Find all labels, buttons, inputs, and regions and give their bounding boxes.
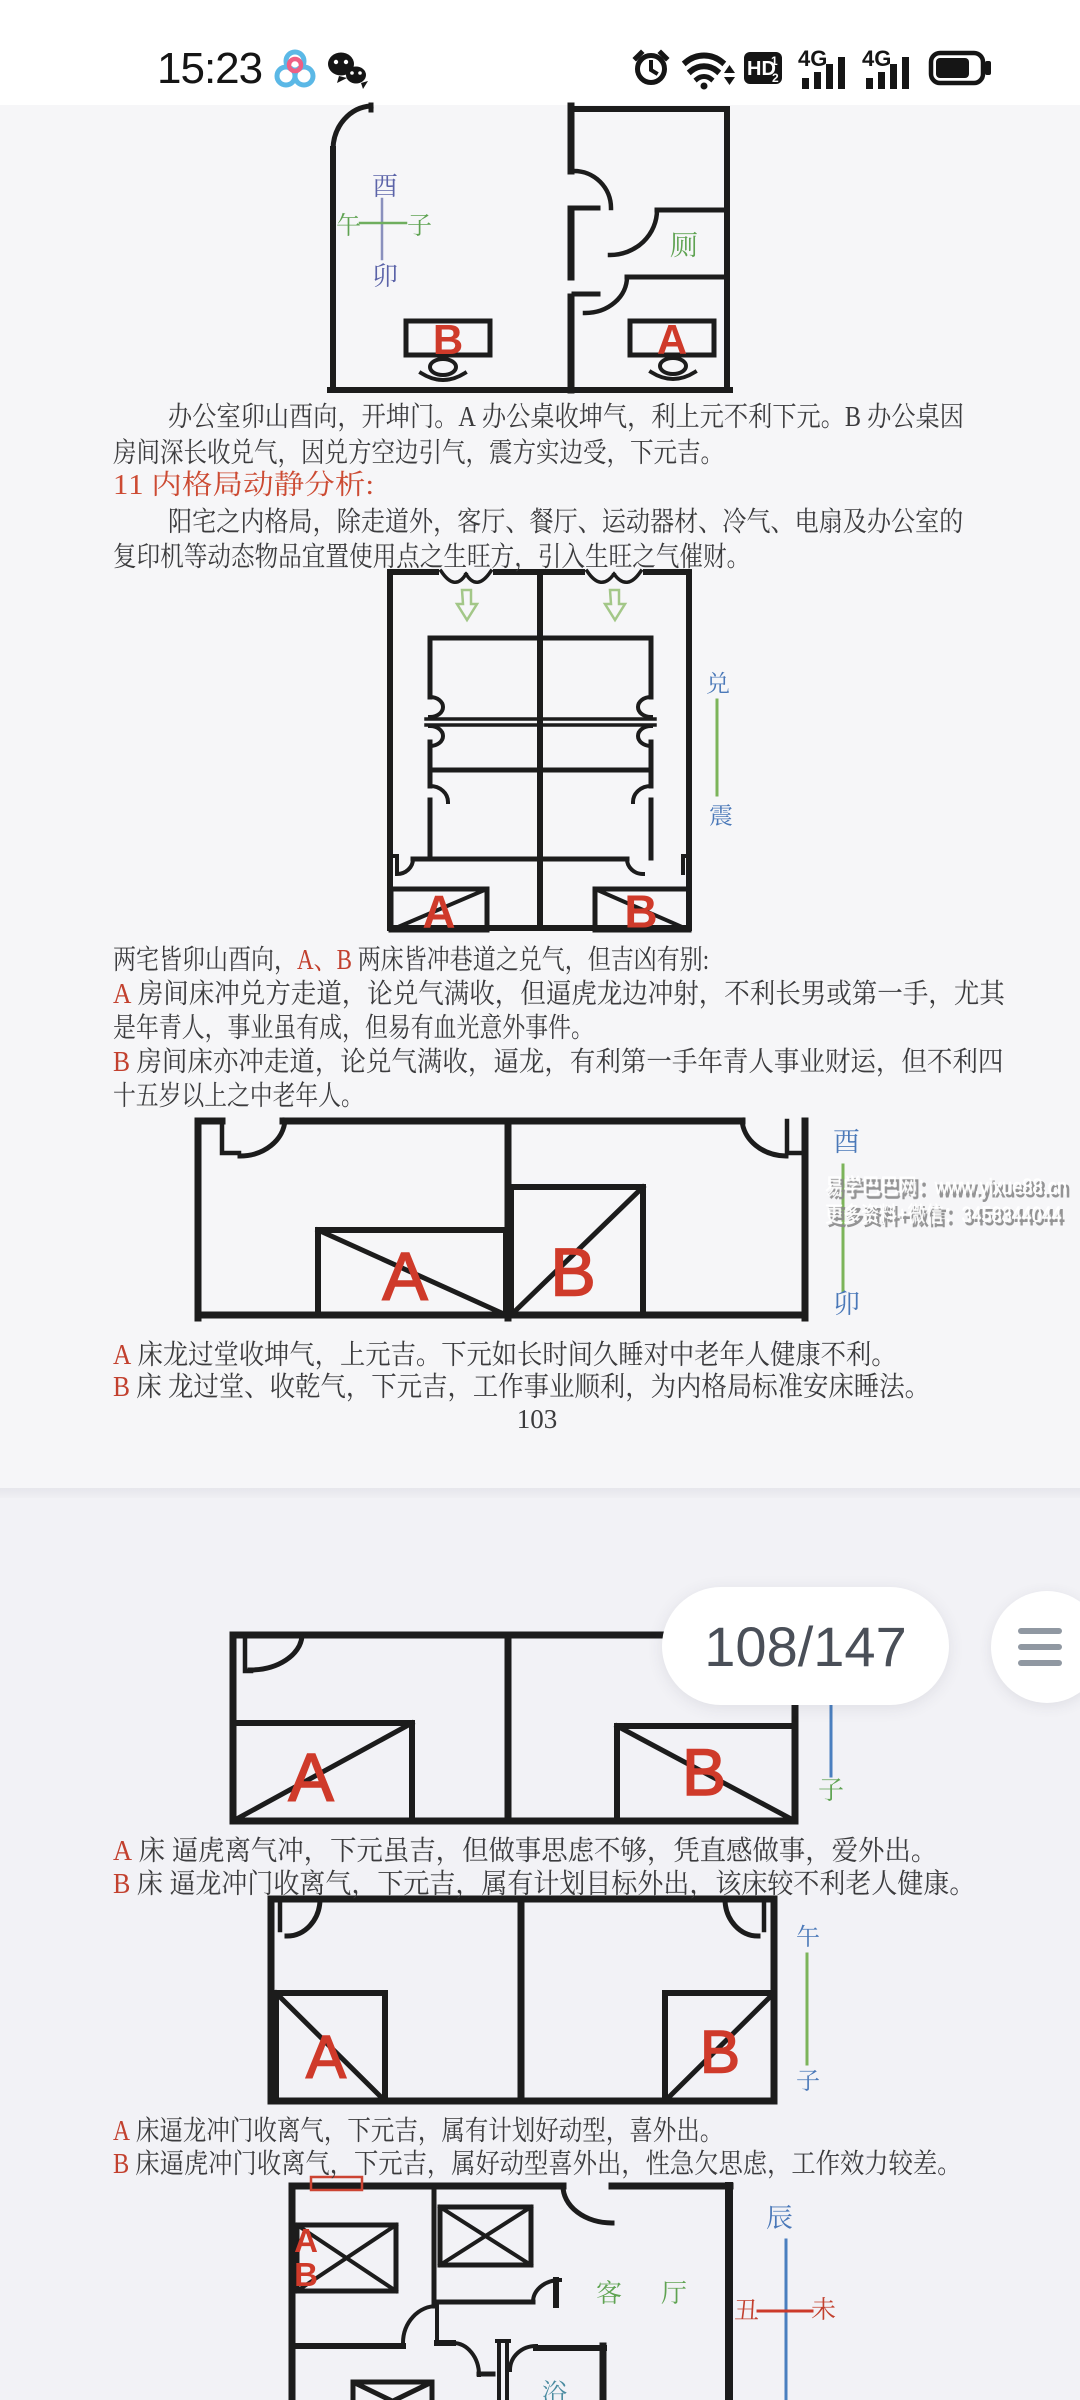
svg-text:4: 4 (1052, 1203, 1062, 1227)
svg-text:0: 0 (1032, 1203, 1042, 1227)
svg-text:8: 8 (992, 1203, 1002, 1227)
svg-text:B: B (624, 886, 657, 938)
svg-text:n: n (1057, 1176, 1067, 1200)
svg-text:B: B (294, 2256, 318, 2293)
svg-text:A: A (306, 2024, 346, 2091)
svg-text::: : (703, 944, 709, 976)
svg-text:A: A (297, 944, 314, 976)
svg-text:8: 8 (1032, 1176, 1042, 1200)
svg-text:B: B (433, 316, 463, 363)
svg-text:4: 4 (972, 1203, 982, 1227)
svg-text:A: A (113, 1835, 132, 1866)
svg-text:1: 1 (113, 470, 128, 501)
svg-text:A: A (422, 886, 455, 938)
svg-text:4: 4 (1022, 1203, 1032, 1227)
svg-text:e: e (1012, 1176, 1022, 1200)
svg-text:4G: 4G (798, 46, 827, 71)
svg-text:.: . (1043, 1176, 1048, 1200)
svg-text:A: A (458, 401, 476, 432)
svg-text:A: A (294, 2222, 318, 2259)
svg-text:x: x (993, 1176, 1002, 1200)
svg-text:4: 4 (1012, 1203, 1022, 1227)
svg-text:+: + (897, 1203, 908, 1227)
svg-text:B: B (113, 1371, 130, 1402)
svg-text:B: B (682, 1735, 726, 1809)
svg-text:i: i (989, 1176, 993, 1200)
svg-text:c: c (1048, 1176, 1057, 1200)
svg-text:B: B (113, 1868, 130, 1899)
svg-text:1: 1 (128, 470, 143, 501)
svg-text:4: 4 (1042, 1203, 1052, 1227)
svg-text:B: B (550, 1234, 595, 1310)
svg-text:103: 103 (517, 1404, 558, 1434)
svg-text:5: 5 (982, 1203, 992, 1227)
svg-text:A: A (113, 1339, 132, 1370)
svg-text:.: . (974, 1176, 979, 1200)
svg-text:w: w (947, 1176, 961, 1200)
svg-text:A: A (382, 1238, 428, 1314)
svg-text:1: 1 (771, 54, 778, 68)
svg-text::: : (365, 470, 374, 501)
svg-text:A: A (113, 2115, 130, 2146)
svg-text:A: A (113, 978, 132, 1009)
svg-text:B: B (113, 2148, 129, 2179)
svg-text:w: w (934, 1176, 948, 1200)
svg-text:A: A (288, 1739, 334, 1815)
svg-text:3: 3 (962, 1203, 972, 1227)
svg-text:B: B (337, 944, 352, 976)
svg-text:4G: 4G (862, 46, 891, 71)
svg-text:B: B (113, 1046, 130, 1077)
svg-text:y: y (980, 1176, 990, 1200)
svg-text:w: w (960, 1176, 974, 1200)
svg-text:B: B (700, 2019, 740, 2086)
svg-text:B: B (845, 401, 861, 432)
svg-text:3: 3 (1002, 1203, 1012, 1227)
svg-text:8: 8 (1022, 1176, 1032, 1200)
svg-text:u: u (1002, 1176, 1012, 1200)
svg-text:2: 2 (772, 71, 779, 85)
